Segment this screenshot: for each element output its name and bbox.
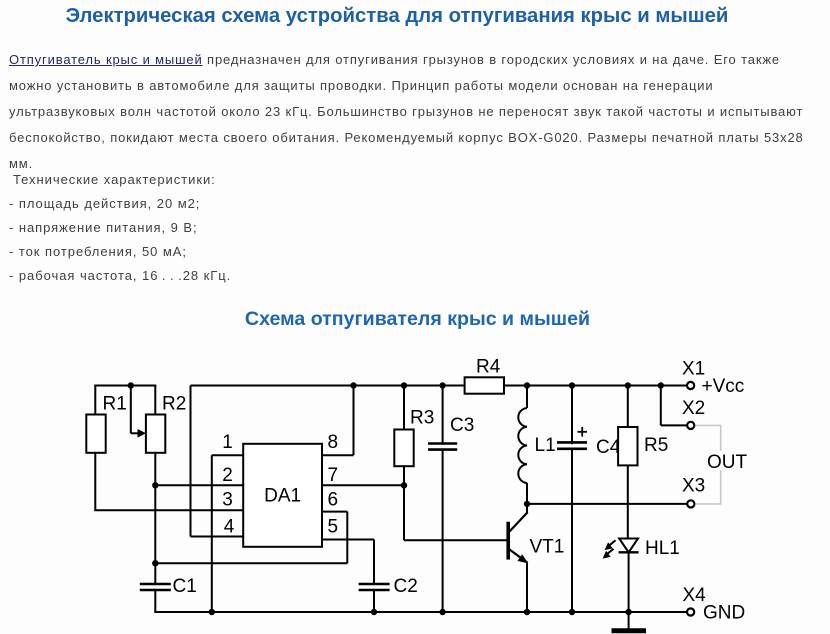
svg-text:6: 6 <box>328 490 339 511</box>
svg-text:R3: R3 <box>410 408 434 429</box>
svg-text:X2: X2 <box>682 398 705 419</box>
svg-text:R5: R5 <box>644 435 668 456</box>
svg-text:L1: L1 <box>535 435 556 456</box>
svg-text:1: 1 <box>222 432 233 453</box>
svg-text:C4: C4 <box>596 437 621 458</box>
svg-text:4: 4 <box>224 517 235 538</box>
svg-text:5: 5 <box>328 517 339 538</box>
svg-text:8: 8 <box>328 432 339 453</box>
svg-text:VT1: VT1 <box>530 537 565 558</box>
svg-text:3: 3 <box>222 490 233 511</box>
svg-text:+Vcc: +Vcc <box>702 376 745 397</box>
svg-text:C1: C1 <box>173 576 197 597</box>
svg-text:DA1: DA1 <box>264 486 301 507</box>
svg-text:7: 7 <box>328 465 339 486</box>
svg-text:GND: GND <box>703 603 745 624</box>
svg-text:R1: R1 <box>103 394 127 415</box>
svg-text:X3: X3 <box>682 476 705 497</box>
svg-text:R4: R4 <box>476 357 501 378</box>
svg-text:C2: C2 <box>394 576 418 597</box>
svg-text:C3: C3 <box>450 415 474 436</box>
svg-text:HL1: HL1 <box>645 538 680 559</box>
svg-text:2: 2 <box>222 465 233 486</box>
svg-text:R2: R2 <box>162 394 186 415</box>
svg-text:OUT: OUT <box>707 452 748 473</box>
